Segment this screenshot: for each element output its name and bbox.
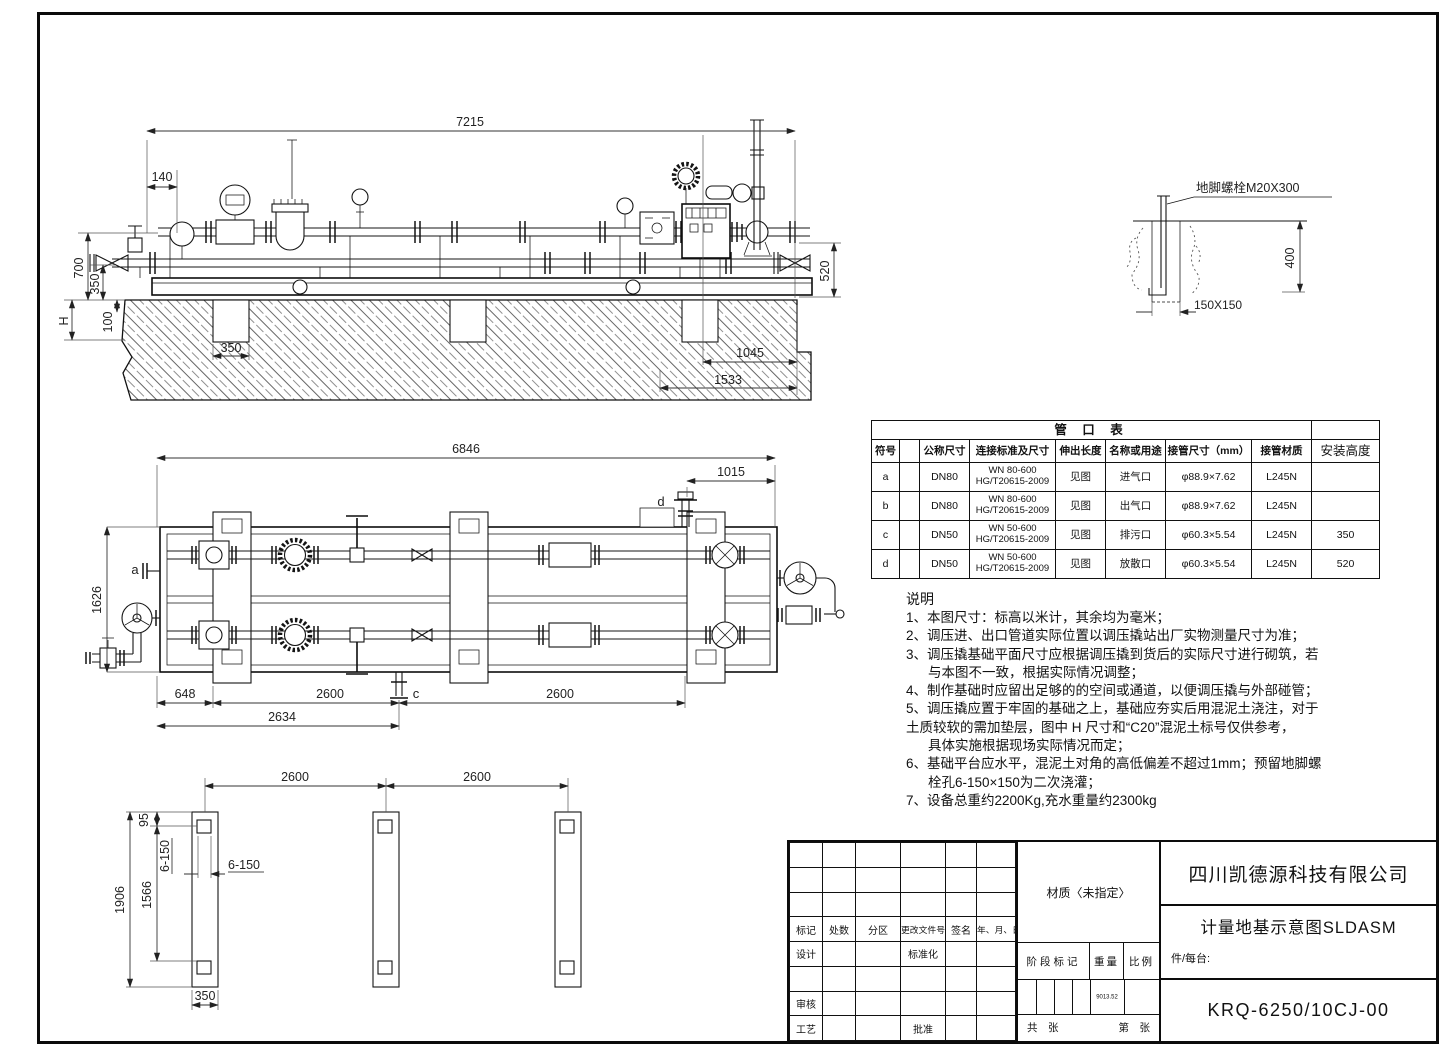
dim-f350: 350 <box>195 989 216 1003</box>
rev-count-label: 处数 <box>823 917 856 942</box>
dim-6846: 6846 <box>452 442 480 456</box>
pressure-gauge <box>352 189 368 228</box>
col-material: 接管材质 <box>1252 440 1312 463</box>
foundation-dimensions: 2600 2600 1906 1566 95 6-150 6-150 350 <box>113 770 568 1010</box>
foundation-pads <box>192 812 581 987</box>
elevation-equipment <box>90 120 810 278</box>
approve-label: 批准 <box>901 1016 946 1041</box>
col-pipe-size: 接管尺寸（mm） <box>1166 440 1252 463</box>
rev-sign-label: 签名 <box>946 917 977 942</box>
col-blank <box>900 440 920 463</box>
rev-mark-label: 标记 <box>790 917 823 942</box>
drawing-number: KRQ-6250/10CJ-00 <box>1161 980 1436 1041</box>
dim-7215: 7215 <box>456 115 484 129</box>
dim-2600-2: 2600 <box>546 687 574 701</box>
per-unit-label: 件/每台: <box>1171 950 1426 966</box>
rev-zone-label: 分区 <box>856 917 901 942</box>
note-line: 2、调压进、出口管道实际位置以调压撬站出厂实物测量尺寸为准； <box>906 627 1411 645</box>
review-label: 审核 <box>790 991 823 1016</box>
standardization-label: 标准化 <box>901 942 946 967</box>
dim-140: 140 <box>152 170 173 184</box>
dim-1533: 1533 <box>714 373 742 387</box>
dim-1626: 1626 <box>90 586 104 614</box>
table-row: b DN80 WN 80-600HG/T20615-2009 见图 出气口 φ8… <box>872 492 1380 521</box>
rev-docno-label: 更改文件号 <box>901 917 946 942</box>
outlet-valve <box>774 252 810 274</box>
material-label: 材质〈未指定〉 <box>1018 842 1159 943</box>
nozzle-label-c: c <box>413 686 420 701</box>
note-line: 与本图不一致，根据实际情况调整； <box>906 664 1411 682</box>
skid-base-frame <box>152 278 812 295</box>
stage-mark-label: 阶段标记 <box>1018 943 1090 979</box>
dim-H: H <box>57 316 71 325</box>
note-line: 1、本图尺寸：标高以米计，其余均为毫米； <box>906 609 1411 627</box>
plan-outlet-piping <box>777 562 844 624</box>
scale-label: 比例 <box>1124 943 1159 979</box>
dim-2600-1: 2600 <box>316 687 344 701</box>
col-symbol: 符号 <box>872 440 900 463</box>
dim-f2600-2: 2600 <box>463 770 491 784</box>
inlet-nozzle-a: a <box>131 562 160 579</box>
dim-648: 648 <box>175 687 196 701</box>
dim-6-150-h: 6-150 <box>228 858 260 872</box>
rev-date-label: 年、月、日 <box>977 917 1016 942</box>
dim-350v: 350 <box>88 274 102 295</box>
sheet-number: 第 张 <box>1119 1020 1151 1035</box>
filter-vessel <box>272 140 308 250</box>
motor-actuator <box>706 184 764 202</box>
note-line: 7、设备总重约2200Kg,充水重量约2300kg <box>906 792 1411 810</box>
dim-95: 95 <box>137 813 151 827</box>
dim-1045: 1045 <box>736 346 764 360</box>
nozzle-table-title: 管 口 表 <box>872 421 1312 440</box>
dim-1015: 1015 <box>717 465 745 479</box>
foundation-plan-view: 2600 2600 1906 1566 95 6-150 6-150 350 <box>113 770 581 1010</box>
note-line: 栓孔6-150×150为二次浇灌； <box>906 774 1411 792</box>
sheets-total: 共 张 <box>1027 1020 1059 1035</box>
process-label: 工艺 <box>790 1016 823 1041</box>
pilot-handwheel <box>674 164 698 204</box>
dim-520: 520 <box>818 261 832 282</box>
notes-block: 说明 1、本图尺寸：标高以米计，其余均为毫米； 2、调压进、出口管道实际位置以调… <box>906 590 1411 810</box>
anchor-bolt-detail: 地脚螺栓M20X300 400 150X150 <box>1126 180 1332 316</box>
note-line: 5、调压撬应置于牢固的基础之上，基础应夯实后用混泥土浇注，对于 <box>906 700 1411 718</box>
note-line: 具体实施根据现场实际情况而定； <box>906 737 1411 755</box>
vent-nozzle-d: d <box>640 492 697 527</box>
title-block: 标记 处数 分区 更改文件号 签名 年、月、日 设计 标准化 审核 工艺 批准 … <box>787 840 1438 1043</box>
nozzle-table: 管 口 表 符号 公称尺寸 连接标准及尺寸 伸出长度 名称或用途 接管尺寸（mm… <box>871 420 1380 578</box>
note-line: 3、调压撬基础平面尺寸应根据调压撬到货后的实际尺寸进行砌筑，若 <box>906 646 1411 664</box>
company-name: 四川凯德源科技有限公司 <box>1161 842 1436 906</box>
dim-1906: 1906 <box>113 886 127 914</box>
dim-350-pier: 350 <box>221 341 242 355</box>
col-standard: 连接标准及尺寸 <box>970 440 1056 463</box>
plan-view: d c a <box>86 442 844 730</box>
col-purpose: 名称或用途 <box>1106 440 1166 463</box>
weight-label: 重量 <box>1090 943 1124 979</box>
note-line: 4、制作基础时应留出足够的的空间或通道，以便调压撬与外部碰管； <box>906 682 1411 700</box>
col-extension: 伸出长度 <box>1056 440 1106 463</box>
pressure-gauge-2 <box>617 198 633 228</box>
dim-100: 100 <box>101 312 115 333</box>
dim-f2600-1: 2600 <box>281 770 309 784</box>
dim-700: 700 <box>72 258 86 279</box>
table-row: a DN80 WN 80-600HG/T20615-2009 见图 进气口 φ8… <box>872 463 1380 492</box>
dim-1566: 1566 <box>140 881 154 909</box>
drawing-title: 计量地基示意图SLDASM <box>1171 914 1426 938</box>
dim-6-150-v: 6-150 <box>158 840 172 872</box>
nozzle-label-a: a <box>131 562 139 577</box>
note-line: 土质较软的需加垫层，图中 H 尺寸和“C20”混泥土标号仅供参考， <box>906 719 1411 737</box>
col-install-height: 安装高度 <box>1312 440 1380 463</box>
title-block-middle: 材质〈未指定〉 阶段标记 重量 比例 9013.52 共 张 第 张 <box>1018 842 1161 1041</box>
anchor-bolt-label: 地脚螺栓M20X300 <box>1196 180 1300 195</box>
relief-valve <box>128 226 142 252</box>
dim-400: 400 <box>1283 248 1297 269</box>
flow-meter <box>216 185 254 244</box>
nozzle-label-d: d <box>657 494 664 509</box>
revision-grid: 标记 处数 分区 更改文件号 签名 年、月、日 设计 标准化 审核 工艺 批准 <box>789 842 1018 1041</box>
handwheel-valve-side <box>170 222 194 259</box>
drain-nozzle-c: c <box>390 672 420 701</box>
stage-mark-cells: 9013.52 <box>1018 980 1159 1015</box>
dim-2634: 2634 <box>268 710 296 724</box>
title-block-right: 四川凯德源科技有限公司 计量地基示意图SLDASM 件/每台: KRQ-6250… <box>1161 842 1436 1041</box>
control-box <box>640 212 674 244</box>
note-line: 6、基础平台应水平，混泥土对角的高低偏差不超过1mm；预留地脚螺 <box>906 755 1411 773</box>
notes-title: 说明 <box>906 590 1411 609</box>
design-label: 设计 <box>790 942 823 967</box>
col-nominal-size: 公称尺寸 <box>920 440 970 463</box>
table-row: d DN50 WN 50-600HG/T20615-2009 见图 放散口 φ6… <box>872 550 1380 579</box>
dim-150x150: 150X150 <box>1194 298 1242 312</box>
weight-value: 9013.52 <box>1093 983 1122 1012</box>
table-row: c DN50 WN 50-600HG/T20615-2009 见图 排污口 φ6… <box>872 521 1380 550</box>
concrete-stipple <box>1126 226 1200 294</box>
elevation-view: 7215 140 700 350 H 100 350 1045 1533 520 <box>57 115 841 400</box>
